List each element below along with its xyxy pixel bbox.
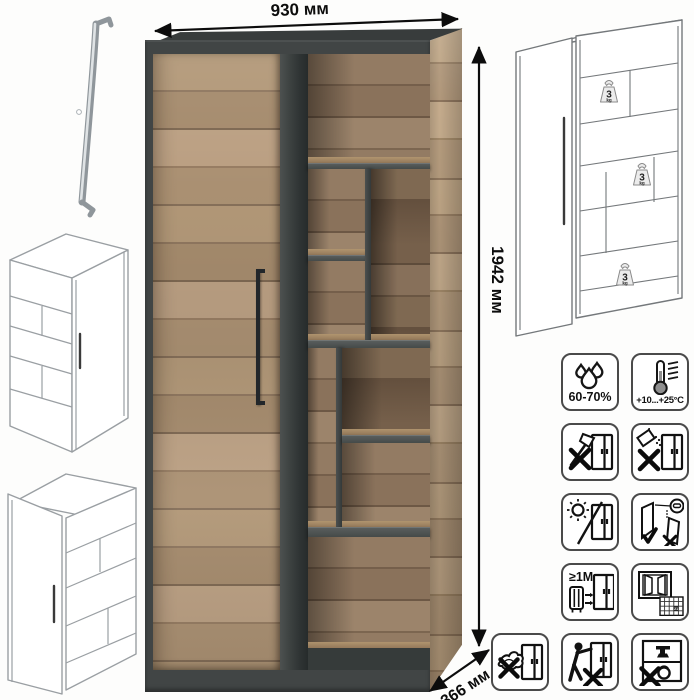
water-drops-icon	[567, 360, 613, 390]
shelf-compartment	[342, 348, 430, 435]
person-dragging-crossed-icon	[566, 638, 614, 686]
close-doors-gently-icon	[631, 493, 689, 551]
temperature-icon: +10...+25°C	[631, 353, 689, 411]
shelf-compartment	[342, 443, 430, 527]
cabinet-side-panel	[430, 28, 462, 694]
wireframe-closed-view	[2, 226, 134, 461]
width-dimension-label: 930 мм	[270, 0, 329, 20]
calendar-day-label: 21	[674, 607, 678, 611]
no-overloading-icon	[631, 633, 689, 691]
product-infographic: 3 kg 3 kg 3 kg 930 мм 1942 мм 366 мм	[0, 0, 694, 700]
handle-drawing	[30, 2, 120, 227]
door-check-cross-icon	[636, 498, 684, 546]
shelf	[308, 340, 430, 348]
distance-label: ≥1M	[569, 570, 593, 584]
load-unit: kg	[622, 281, 628, 286]
rag-crossed-icon	[496, 638, 544, 686]
shelf-compartment	[308, 261, 365, 340]
humidity-icon: 60-70%	[561, 353, 619, 411]
open-shelf-column	[308, 54, 430, 670]
shelf	[308, 527, 430, 537]
axe-crossed-icon	[566, 428, 614, 476]
no-wet-cleaning-icon	[491, 633, 549, 691]
shelf-compartment	[308, 537, 430, 648]
wireframe-load-diagram: 3 kg 3 kg 3 kg	[506, 6, 694, 344]
no-direct-sunlight-icon	[561, 493, 619, 551]
humidity-label: 60-70%	[568, 391, 611, 404]
shelf-compartment	[308, 169, 365, 255]
shelf-compartment	[371, 169, 430, 340]
shelf-compartment	[308, 54, 430, 163]
no-spilling-icon	[631, 423, 689, 481]
height-dimension-label: 1942 мм	[488, 246, 507, 314]
no-dragging-icon	[561, 633, 619, 691]
load-unit: kg	[639, 181, 645, 186]
load-unit: kg	[606, 98, 612, 103]
open-window-calendar-icon: 21	[636, 568, 684, 616]
thermometer-icon	[637, 359, 683, 395]
ventilate-acclimatize-icon: 21	[631, 563, 689, 621]
heat-distance-icon: ≥1M	[561, 563, 619, 621]
shelf-compartment	[308, 348, 336, 527]
temperature-label: +10...+25°C	[636, 396, 684, 406]
cabinet-front	[145, 40, 430, 692]
radiator-distance-icon: ≥1M	[566, 568, 614, 616]
cabinet-door	[153, 54, 280, 670]
wireframe-open-view	[0, 458, 142, 700]
no-sharp-tools-icon	[561, 423, 619, 481]
overload-crossed-icon	[636, 638, 684, 686]
shelf	[342, 435, 430, 443]
center-partition	[280, 54, 308, 670]
cabinet-render	[145, 26, 467, 698]
sun-slash-icon	[566, 498, 614, 546]
spilling-box-crossed-icon	[636, 428, 684, 476]
door-handle	[256, 269, 260, 405]
